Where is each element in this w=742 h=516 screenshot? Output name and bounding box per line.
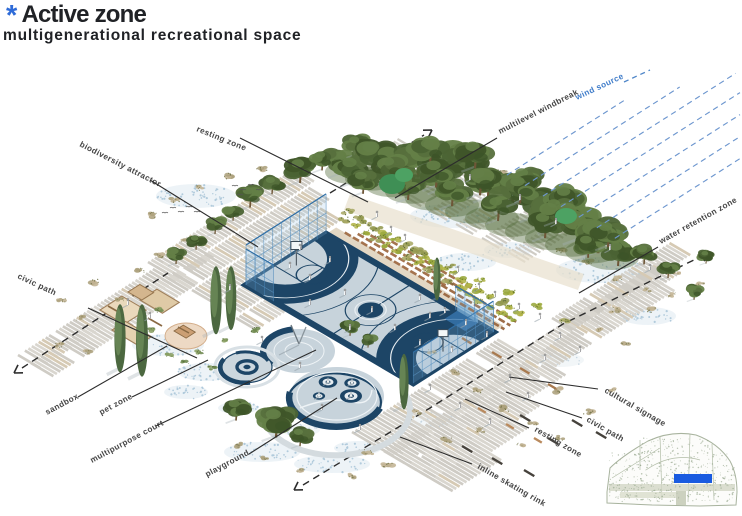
svg-text:multilevel windbreak: multilevel windbreak [497,88,580,136]
svg-text:multipurpose court: multipurpose court [89,418,165,464]
svg-text:civic path: civic path [16,272,58,298]
svg-text:cultural signage: cultural signage [603,386,667,428]
svg-text:wind source: wind source [573,72,625,103]
svg-text:biodiversity attractor: biodiversity attractor [78,140,163,189]
svg-text:sandbox: sandbox [44,392,80,417]
svg-text:inline skating rink: inline skating rink [476,462,547,508]
svg-text:civic path: civic path [585,415,626,444]
svg-text:pet zone: pet zone [98,392,134,417]
svg-text:water retention zone: water retention zone [657,195,739,246]
svg-text:resting zone: resting zone [195,125,248,153]
